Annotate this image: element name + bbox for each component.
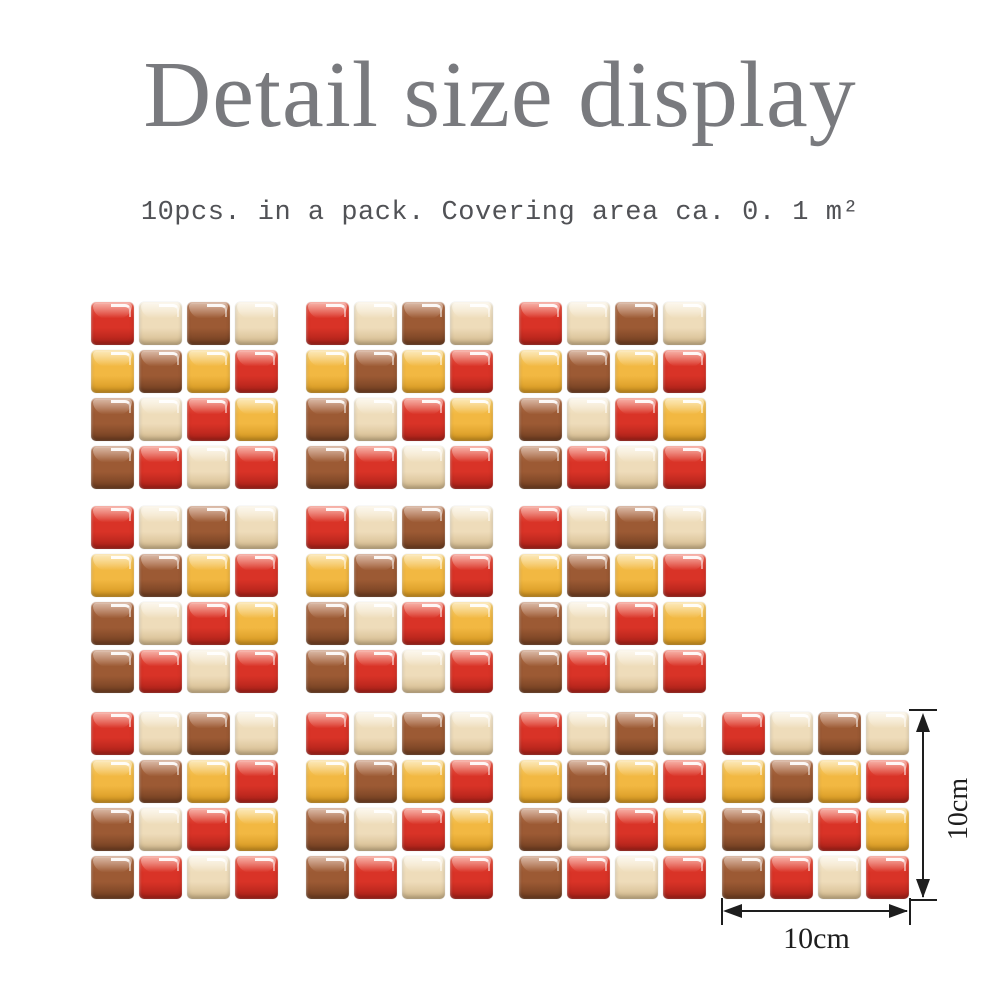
mosaic-tile-red xyxy=(519,506,562,549)
mosaic-tile-cream xyxy=(567,808,610,851)
arrow-up-icon xyxy=(916,713,930,732)
width-dimension-label: 10cm xyxy=(722,922,911,955)
mosaic-tile-yellow xyxy=(519,350,562,393)
mosaic-tile-red xyxy=(139,446,182,489)
mosaic-tile-red xyxy=(866,760,909,803)
mosaic-tile-brown xyxy=(402,302,445,345)
mosaic-tile-cream xyxy=(354,808,397,851)
mosaic-sheet-4 xyxy=(91,506,278,693)
mosaic-tile-cream xyxy=(567,602,610,645)
mosaic-tile-brown xyxy=(615,712,658,755)
mosaic-tile-cream xyxy=(615,446,658,489)
mosaic-sheet-8 xyxy=(306,712,493,899)
mosaic-tile-red xyxy=(450,446,493,489)
mosaic-tile-cream xyxy=(354,712,397,755)
width-dimension-cap-right xyxy=(909,898,911,925)
mosaic-tile-brown xyxy=(91,602,134,645)
mosaic-tile-brown xyxy=(91,808,134,851)
mosaic-tile-brown xyxy=(306,650,349,693)
mosaic-tile-red xyxy=(663,350,706,393)
mosaic-tile-red xyxy=(519,712,562,755)
mosaic-tile-red xyxy=(91,506,134,549)
mosaic-tile-brown xyxy=(770,760,813,803)
mosaic-tile-cream xyxy=(235,712,278,755)
mosaic-tile-red xyxy=(402,808,445,851)
mosaic-tile-brown xyxy=(354,350,397,393)
mosaic-tile-brown xyxy=(306,398,349,441)
mosaic-tile-brown xyxy=(187,506,230,549)
mosaic-tile-cream xyxy=(450,712,493,755)
mosaic-tile-yellow xyxy=(663,398,706,441)
mosaic-sheets-area xyxy=(0,0,1000,1000)
width-dimension-line xyxy=(726,910,907,912)
mosaic-tile-cream xyxy=(402,856,445,899)
mosaic-tile-brown xyxy=(615,506,658,549)
mosaic-tile-red xyxy=(663,760,706,803)
mosaic-tile-yellow xyxy=(615,554,658,597)
mosaic-tile-brown xyxy=(91,856,134,899)
mosaic-tile-yellow xyxy=(663,808,706,851)
mosaic-tile-cream xyxy=(615,856,658,899)
mosaic-tile-brown xyxy=(139,554,182,597)
mosaic-tile-yellow xyxy=(615,760,658,803)
mosaic-tile-yellow xyxy=(519,554,562,597)
mosaic-tile-red xyxy=(402,602,445,645)
mosaic-tile-red xyxy=(450,760,493,803)
mosaic-tile-brown xyxy=(306,808,349,851)
mosaic-tile-red xyxy=(235,554,278,597)
height-dimension-cap-top xyxy=(909,709,937,711)
mosaic-tile-red xyxy=(235,446,278,489)
mosaic-sheet-7 xyxy=(91,712,278,899)
height-dimension-cap-bottom xyxy=(909,899,937,901)
mosaic-tile-cream xyxy=(866,712,909,755)
mosaic-tile-red xyxy=(450,856,493,899)
mosaic-tile-brown xyxy=(139,350,182,393)
mosaic-tile-red xyxy=(663,446,706,489)
mosaic-tile-cream xyxy=(402,650,445,693)
mosaic-tile-red xyxy=(187,808,230,851)
mosaic-tile-red xyxy=(235,350,278,393)
mosaic-tile-yellow xyxy=(615,350,658,393)
mosaic-tile-red xyxy=(663,650,706,693)
mosaic-tile-red xyxy=(354,650,397,693)
mosaic-tile-yellow xyxy=(450,602,493,645)
mosaic-tile-brown xyxy=(722,856,765,899)
mosaic-tile-yellow xyxy=(450,808,493,851)
mosaic-tile-brown xyxy=(567,350,610,393)
mosaic-tile-red xyxy=(235,650,278,693)
mosaic-tile-yellow xyxy=(235,808,278,851)
mosaic-tile-cream xyxy=(663,302,706,345)
mosaic-tile-brown xyxy=(519,446,562,489)
mosaic-tile-brown xyxy=(354,554,397,597)
mosaic-tile-brown xyxy=(354,760,397,803)
mosaic-tile-brown xyxy=(91,446,134,489)
mosaic-tile-yellow xyxy=(402,760,445,803)
mosaic-tile-cream xyxy=(139,302,182,345)
mosaic-tile-yellow xyxy=(722,760,765,803)
mosaic-tile-yellow xyxy=(866,808,909,851)
mosaic-tile-brown xyxy=(187,712,230,755)
mosaic-tile-yellow xyxy=(91,350,134,393)
mosaic-tile-red xyxy=(139,856,182,899)
mosaic-tile-brown xyxy=(91,650,134,693)
mosaic-tile-cream xyxy=(354,302,397,345)
arrow-down-icon xyxy=(916,879,930,898)
mosaic-tile-brown xyxy=(306,602,349,645)
mosaic-tile-red xyxy=(567,650,610,693)
mosaic-tile-red xyxy=(235,760,278,803)
mosaic-tile-brown xyxy=(91,398,134,441)
mosaic-tile-yellow xyxy=(235,398,278,441)
mosaic-tile-cream xyxy=(567,398,610,441)
mosaic-tile-cream xyxy=(139,398,182,441)
mosaic-tile-cream xyxy=(770,808,813,851)
arrow-left-icon xyxy=(723,904,742,918)
mosaic-tile-yellow xyxy=(187,760,230,803)
mosaic-tile-red xyxy=(354,446,397,489)
mosaic-sheet-2 xyxy=(306,302,493,489)
mosaic-tile-red xyxy=(663,856,706,899)
mosaic-sheet-5 xyxy=(306,506,493,693)
mosaic-tile-yellow xyxy=(187,350,230,393)
mosaic-tile-red xyxy=(139,650,182,693)
mosaic-tile-brown xyxy=(615,302,658,345)
mosaic-tile-red xyxy=(722,712,765,755)
mosaic-tile-red xyxy=(615,602,658,645)
mosaic-tile-red xyxy=(663,554,706,597)
mosaic-tile-red xyxy=(615,398,658,441)
mosaic-tile-yellow xyxy=(402,350,445,393)
mosaic-tile-brown xyxy=(519,602,562,645)
mosaic-tile-cream xyxy=(567,712,610,755)
mosaic-tile-brown xyxy=(519,808,562,851)
mosaic-tile-cream xyxy=(139,602,182,645)
mosaic-tile-yellow xyxy=(818,760,861,803)
mosaic-tile-yellow xyxy=(235,602,278,645)
mosaic-tile-brown xyxy=(187,302,230,345)
mosaic-tile-cream xyxy=(818,856,861,899)
mosaic-tile-red xyxy=(818,808,861,851)
mosaic-tile-yellow xyxy=(663,602,706,645)
mosaic-tile-red xyxy=(567,446,610,489)
mosaic-tile-yellow xyxy=(187,554,230,597)
mosaic-tile-yellow xyxy=(306,554,349,597)
mosaic-tile-yellow xyxy=(306,350,349,393)
mosaic-tile-cream xyxy=(187,856,230,899)
mosaic-tile-yellow xyxy=(519,760,562,803)
mosaic-tile-cream xyxy=(567,506,610,549)
mosaic-tile-brown xyxy=(818,712,861,755)
mosaic-tile-red xyxy=(306,506,349,549)
mosaic-tile-yellow xyxy=(402,554,445,597)
mosaic-tile-red xyxy=(866,856,909,899)
mosaic-tile-cream xyxy=(187,650,230,693)
mosaic-tile-red xyxy=(450,650,493,693)
mosaic-tile-cream xyxy=(402,446,445,489)
mosaic-sheet-9 xyxy=(519,712,706,899)
mosaic-tile-red xyxy=(187,602,230,645)
mosaic-tile-yellow xyxy=(91,554,134,597)
mosaic-tile-yellow xyxy=(450,398,493,441)
mosaic-tile-cream xyxy=(354,602,397,645)
mosaic-sheet-1 xyxy=(91,302,278,489)
mosaic-tile-cream xyxy=(567,302,610,345)
mosaic-tile-red xyxy=(770,856,813,899)
mosaic-tile-brown xyxy=(567,554,610,597)
mosaic-tile-cream xyxy=(615,650,658,693)
mosaic-tile-red xyxy=(402,398,445,441)
height-dimension-line xyxy=(922,716,924,897)
mosaic-tile-cream xyxy=(354,398,397,441)
mosaic-tile-cream xyxy=(235,302,278,345)
mosaic-tile-brown xyxy=(402,712,445,755)
mosaic-tile-red xyxy=(306,302,349,345)
mosaic-tile-red xyxy=(450,350,493,393)
mosaic-tile-brown xyxy=(139,760,182,803)
mosaic-tile-cream xyxy=(139,712,182,755)
mosaic-tile-red xyxy=(567,856,610,899)
mosaic-tile-red xyxy=(91,712,134,755)
mosaic-tile-red xyxy=(306,712,349,755)
mosaic-tile-cream xyxy=(235,506,278,549)
mosaic-tile-yellow xyxy=(91,760,134,803)
mosaic-tile-cream xyxy=(187,446,230,489)
mosaic-tile-cream xyxy=(663,506,706,549)
mosaic-tile-brown xyxy=(519,856,562,899)
mosaic-tile-brown xyxy=(519,398,562,441)
mosaic-tile-red xyxy=(354,856,397,899)
mosaic-sheet-10 xyxy=(722,712,909,899)
mosaic-tile-red xyxy=(450,554,493,597)
mosaic-tile-brown xyxy=(402,506,445,549)
mosaic-tile-red xyxy=(235,856,278,899)
mosaic-tile-red xyxy=(91,302,134,345)
mosaic-tile-yellow xyxy=(306,760,349,803)
mosaic-tile-red xyxy=(519,302,562,345)
product-size-diagram: Detail size display 10pcs. in a pack. Co… xyxy=(0,0,1000,1000)
mosaic-tile-cream xyxy=(663,712,706,755)
mosaic-tile-brown xyxy=(567,760,610,803)
mosaic-tile-brown xyxy=(306,856,349,899)
mosaic-tile-brown xyxy=(722,808,765,851)
mosaic-tile-red xyxy=(187,398,230,441)
mosaic-tile-cream xyxy=(770,712,813,755)
mosaic-tile-brown xyxy=(306,446,349,489)
mosaic-sheet-6 xyxy=(519,506,706,693)
mosaic-tile-cream xyxy=(139,506,182,549)
mosaic-tile-cream xyxy=(450,506,493,549)
mosaic-tile-cream xyxy=(450,302,493,345)
height-dimension-label: 10cm xyxy=(945,777,973,841)
mosaic-tile-brown xyxy=(519,650,562,693)
mosaic-tile-cream xyxy=(139,808,182,851)
mosaic-sheet-3 xyxy=(519,302,706,489)
mosaic-tile-cream xyxy=(354,506,397,549)
arrow-right-icon xyxy=(889,904,908,918)
mosaic-tile-red xyxy=(615,808,658,851)
